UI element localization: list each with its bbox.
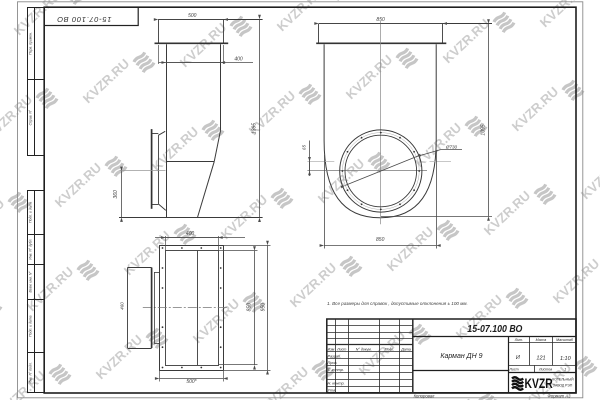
svg-text:И: И: [516, 355, 520, 361]
svg-text:Подп. и дата: Подп. и дата: [29, 315, 33, 336]
svg-text:360: 360: [113, 190, 119, 199]
svg-text:15-07.100 ВО: 15-07.100 ВО: [467, 322, 523, 334]
svg-text:460: 460: [119, 302, 124, 310]
svg-text:850: 850: [376, 237, 385, 243]
svg-text:15-07.100 ВО: 15-07.100 ВО: [57, 15, 112, 24]
svg-text:Листов: Листов: [538, 368, 552, 372]
svg-text:400: 400: [186, 231, 195, 237]
svg-text:Инв. N° подл.: Инв. N° подл.: [29, 362, 33, 383]
svg-text:Н. контр.: Н. контр.: [328, 382, 345, 386]
svg-text:Копировал: Копировал: [414, 393, 435, 398]
svg-text:1:10: 1:10: [560, 356, 572, 362]
svg-text:Справ. N°: Справ. N°: [29, 109, 33, 125]
svg-text:Подп. и дата: Подп. и дата: [29, 202, 33, 223]
svg-text:1095: 1095: [481, 124, 487, 135]
svg-text:500: 500: [188, 13, 197, 19]
svg-text:Дата: Дата: [400, 348, 410, 352]
svg-text:ЗАВОД РЭП: ЗАВОД РЭП: [553, 384, 573, 388]
svg-text:500*: 500*: [186, 379, 197, 385]
svg-text:KVZR: KVZR: [525, 375, 553, 391]
svg-text:Т. контр.: Т. контр.: [328, 368, 344, 372]
svg-text:1395: 1395: [251, 123, 257, 134]
svg-text:850: 850: [247, 303, 253, 312]
svg-text:Лист: Лист: [508, 368, 518, 372]
svg-text:121: 121: [536, 356, 545, 362]
svg-text:Инв. N° дубл.: Инв. N° дубл.: [29, 239, 33, 260]
svg-text:1. Все размеры для справок ,: 1. Все размеры для справок , допустимые …: [327, 301, 468, 306]
svg-text:Карман ДН 9: Карман ДН 9: [440, 353, 482, 360]
svg-text:Подп.: Подп.: [385, 348, 395, 352]
svg-text:КОТЕЛЬНЫЙ: КОТЕЛЬНЫЙ: [552, 377, 574, 381]
svg-text:400: 400: [234, 56, 243, 62]
svg-text:Утв.: Утв.: [328, 388, 337, 392]
svg-text:Лист: Лист: [336, 348, 346, 352]
svg-text:Лит.: Лит.: [514, 338, 523, 342]
svg-text:Взам. инв. N°: Взам. инв. N°: [29, 271, 33, 293]
svg-text:950: 950: [260, 303, 266, 312]
svg-text:1: 1: [564, 368, 566, 372]
svg-text:Масштаб: Масштаб: [556, 338, 574, 342]
svg-text:Изм: Изм: [328, 348, 335, 352]
svg-text:Масса: Масса: [536, 338, 547, 342]
svg-text:Разраб.: Разраб.: [328, 354, 342, 358]
svg-text:Перв. примен.: Перв. примен.: [29, 32, 33, 55]
svg-text:Ø730: Ø730: [445, 144, 458, 149]
svg-text:N° докум.: N° докум.: [356, 348, 372, 352]
svg-text:Пров.: Пров.: [328, 361, 338, 365]
svg-text:Формат А3: Формат А3: [548, 393, 572, 398]
svg-text:65: 65: [302, 145, 307, 151]
svg-text:850: 850: [376, 17, 385, 23]
